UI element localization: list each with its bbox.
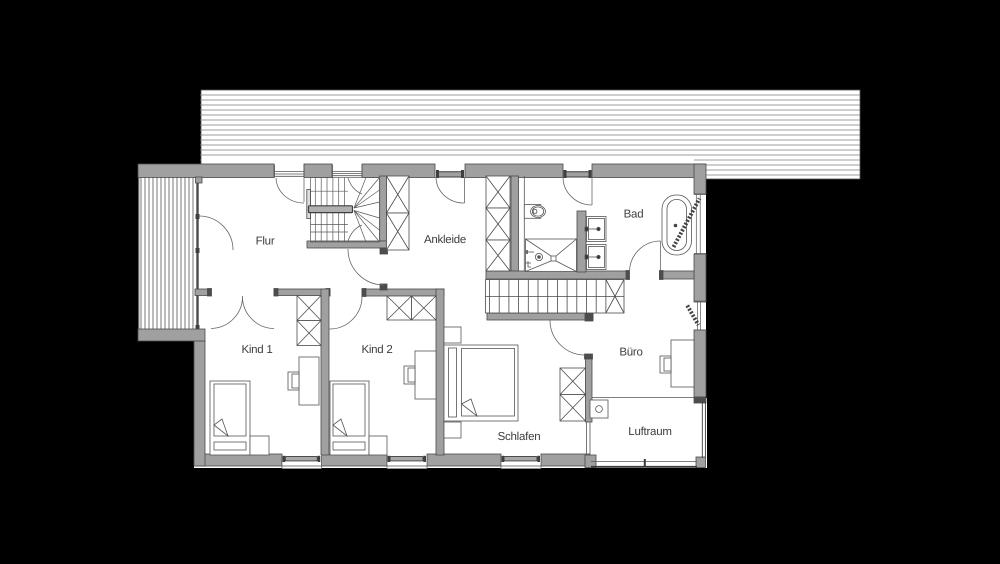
svg-text:Ankleide: Ankleide	[424, 234, 466, 246]
svg-text:Bad: Bad	[624, 209, 644, 221]
svg-text:Schlafen: Schlafen	[498, 431, 541, 443]
svg-text:Kind 1: Kind 1	[241, 344, 272, 356]
svg-text:Luftraum: Luftraum	[628, 426, 671, 438]
svg-text:Kind 2: Kind 2	[361, 344, 392, 356]
svg-text:Flur: Flur	[256, 236, 275, 248]
svg-text:Büro: Büro	[619, 347, 642, 359]
